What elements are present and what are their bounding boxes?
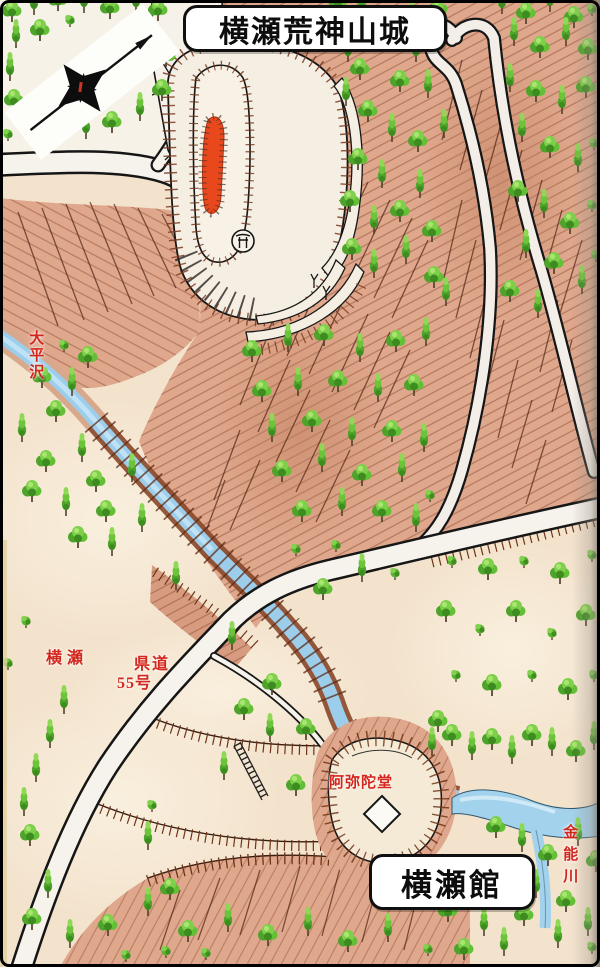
route-label-line2: 55号	[117, 675, 152, 693]
river-label: 金能川	[560, 824, 577, 890]
route-label-line1: 県道	[134, 656, 170, 674]
temple-label: 阿弥陀堂	[329, 775, 393, 792]
shrine-icon	[232, 230, 254, 252]
village-label: 横瀬	[46, 650, 88, 668]
castle-map: 横瀬荒神山城 横瀬館 大平沢 横瀬 県道 55号 阿弥陀堂 金能川	[0, 0, 600, 967]
residence-title: 横瀬館	[401, 860, 503, 905]
keep-marker-icon	[202, 117, 224, 214]
castle-title: 横瀬荒神山城	[219, 7, 411, 51]
residence-title-box: 横瀬館	[369, 854, 535, 910]
stream-label: 大平沢	[26, 330, 43, 381]
castle-title-box: 横瀬荒神山城	[183, 5, 447, 52]
map-canvas	[0, 0, 600, 967]
